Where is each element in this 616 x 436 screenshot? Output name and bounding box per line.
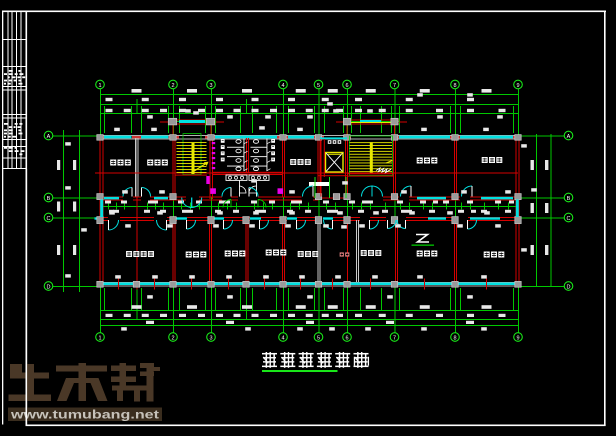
- svg-text:8: 8: [453, 83, 456, 89]
- svg-text:4: 4: [281, 336, 284, 342]
- svg-text:B: B: [47, 196, 51, 202]
- svg-text:7: 7: [393, 83, 396, 89]
- svg-text:D: D: [567, 284, 571, 290]
- svg-text:C: C: [567, 216, 571, 222]
- svg-text:6: 6: [345, 336, 348, 342]
- svg-text:3: 3: [209, 336, 212, 342]
- svg-text:www.tumubang.net: www.tumubang.net: [10, 408, 159, 422]
- svg-text:6: 6: [345, 83, 348, 89]
- svg-text:9: 9: [516, 336, 519, 342]
- svg-text:C: C: [47, 216, 51, 222]
- svg-text:9: 9: [516, 83, 519, 89]
- svg-text:A: A: [567, 134, 571, 140]
- svg-text:D: D: [47, 284, 51, 290]
- svg-text:5: 5: [317, 83, 320, 89]
- svg-text:1: 1: [98, 336, 101, 342]
- svg-text:A: A: [47, 134, 51, 140]
- svg-text:8: 8: [453, 336, 456, 342]
- svg-text:2: 2: [171, 83, 174, 89]
- svg-text:7: 7: [393, 336, 396, 342]
- svg-text:B: B: [567, 196, 571, 202]
- svg-text:1: 1: [98, 83, 101, 89]
- svg-text:3: 3: [209, 83, 212, 89]
- svg-text:5: 5: [317, 336, 320, 342]
- svg-text:2: 2: [171, 336, 174, 342]
- svg-text:4: 4: [281, 83, 284, 89]
